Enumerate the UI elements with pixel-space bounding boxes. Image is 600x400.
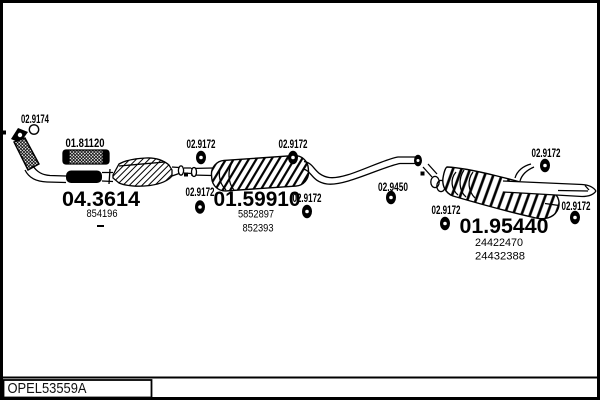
mount-dot [184,173,188,177]
hanger-ring-rear-inlet [440,217,450,231]
callout-gasket: 02.9174 [21,114,49,126]
flex-coupling-part [63,150,109,164]
front-pipe-tick [97,225,104,227]
hanger-ring-top-mid [288,151,298,165]
pipe-flex-sleeve [66,171,102,184]
callout-hanger-tailpipe: 02.9172 [562,201,591,213]
clamp-hole [417,159,420,162]
pipe-clamp [192,168,197,177]
part-number-rear-muffler: 01.95440 [460,215,549,238]
exhaust-diagram-canvas: 02.9174 01.81120 02.9172 02.9172 02.9172… [0,0,600,400]
oem-number-rear-muffler-1: 24422470 [475,237,523,249]
drawing-code: OPEL53559A [8,380,87,397]
cat-outlet-clamp [178,166,183,175]
flex-coupling-cap-right [103,150,110,164]
oem-number-mid-muffler-2: 852393 [243,223,274,235]
hanger-ring-rear-top [540,159,550,173]
oem-number-mid-muffler-1: 5852897 [238,209,274,221]
flange-bolt-hole [18,133,22,137]
callout-hanger-top-left: 02.9172 [187,139,216,151]
callout-flex-coupling: 01.81120 [66,138,105,150]
hanger-ring-bottom-left [195,200,205,214]
mount-dot [2,131,6,135]
mount-dot [421,172,425,176]
callout-hanger-rear-top: 02.9172 [532,148,561,160]
oem-number-front-pipe: 854196 [87,208,118,220]
hanger-ring-bottom-mid [302,205,312,219]
flex-coupling-cap-left [63,150,70,164]
callout-hanger-top-mid: 02.9172 [279,139,308,151]
hanger-ring-top-left [196,151,206,165]
callout-hanger-rear-inlet: 02.9172 [432,205,461,217]
oem-number-rear-muffler-2: 24432388 [475,251,525,263]
callout-hanger-bottom-left: 02.9172 [186,187,215,199]
callout-bracket: 02.9450 [378,182,408,194]
